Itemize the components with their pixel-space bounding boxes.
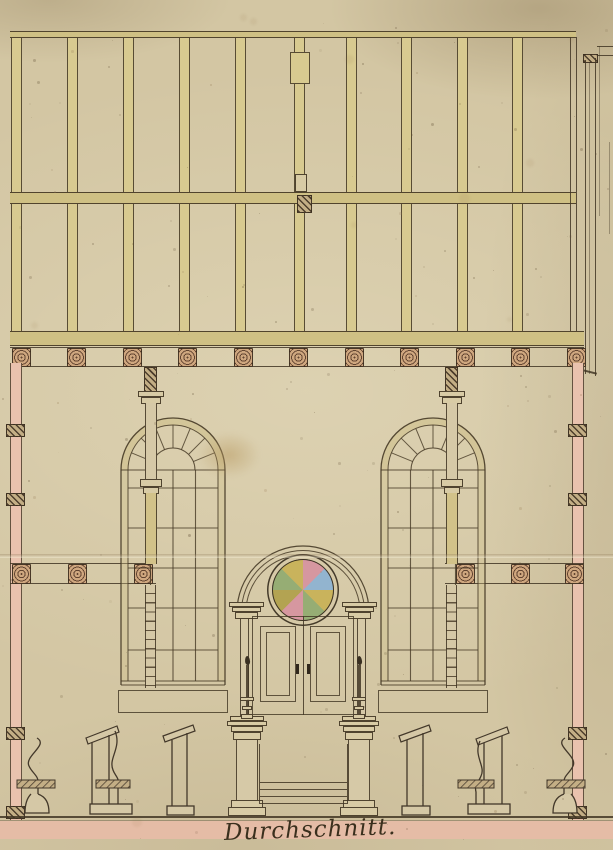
speck bbox=[527, 400, 529, 402]
speck bbox=[574, 116, 575, 117]
speck bbox=[525, 386, 527, 388]
roof-frame-right-line2 bbox=[576, 37, 577, 331]
wall-tie bbox=[6, 424, 25, 437]
gallery-joist-end bbox=[565, 564, 584, 584]
gallery-joist-end bbox=[511, 564, 530, 584]
pedestal-left-base2 bbox=[228, 807, 266, 816]
candle-knob bbox=[242, 706, 252, 710]
platform-step2 bbox=[260, 789, 347, 790]
roof-bottom-chord bbox=[10, 331, 584, 346]
gallery-joist-end bbox=[12, 564, 31, 584]
speck bbox=[540, 276, 542, 278]
roof-tie-beam bbox=[10, 192, 576, 204]
speck bbox=[59, 102, 61, 104]
blotch bbox=[526, 159, 534, 167]
candle-flame bbox=[244, 656, 250, 665]
joist-end bbox=[123, 348, 142, 367]
speck bbox=[323, 23, 324, 24]
arched-window bbox=[378, 413, 488, 689]
platform-side-left bbox=[259, 744, 260, 804]
platform-step4 bbox=[260, 803, 347, 804]
speck bbox=[314, 412, 315, 413]
speck bbox=[333, 533, 335, 535]
lectern-curved-left bbox=[84, 718, 140, 818]
speck bbox=[168, 285, 170, 287]
column-shaft bbox=[446, 403, 458, 480]
speck bbox=[478, 166, 480, 168]
joist-end bbox=[289, 348, 308, 367]
speck bbox=[92, 243, 94, 245]
speck bbox=[501, 102, 503, 104]
blotch bbox=[250, 18, 257, 25]
lectern-right bbox=[396, 718, 436, 818]
edge-line-c bbox=[595, 58, 596, 376]
speck bbox=[2, 585, 4, 587]
candle-flame bbox=[356, 656, 362, 665]
rose-window bbox=[272, 559, 334, 621]
roof-top-rail bbox=[10, 31, 576, 38]
speck bbox=[454, 42, 455, 43]
roof-post bbox=[179, 37, 190, 331]
roof-post bbox=[67, 37, 78, 331]
speck bbox=[524, 791, 527, 794]
candle-foot bbox=[353, 714, 365, 719]
column-corbel bbox=[140, 479, 162, 487]
speck bbox=[275, 321, 277, 323]
joist-end bbox=[234, 348, 253, 367]
pedestal-left-cap4 bbox=[233, 732, 261, 740]
paper-stain bbox=[198, 432, 260, 478]
speck bbox=[519, 507, 522, 510]
speck bbox=[60, 695, 63, 698]
speck bbox=[2, 398, 4, 400]
speck bbox=[300, 437, 303, 440]
blotch bbox=[31, 322, 38, 329]
candle-body bbox=[246, 665, 249, 698]
speck bbox=[304, 756, 306, 758]
speck bbox=[567, 236, 568, 237]
speck bbox=[207, 296, 208, 297]
speck bbox=[548, 558, 550, 560]
speck bbox=[395, 27, 397, 29]
speck bbox=[393, 737, 395, 739]
window-sill-panel-right bbox=[378, 690, 488, 713]
speck bbox=[520, 375, 522, 377]
speck bbox=[580, 148, 583, 151]
wall-tie bbox=[568, 493, 587, 506]
speck bbox=[605, 753, 607, 755]
corner-line-d bbox=[609, 142, 610, 234]
speck bbox=[526, 313, 529, 316]
joist-end bbox=[456, 348, 475, 367]
speck bbox=[31, 117, 32, 118]
column-corbel bbox=[441, 479, 463, 487]
speck bbox=[37, 81, 40, 84]
speck bbox=[173, 248, 176, 251]
speck bbox=[473, 277, 475, 279]
roof-post bbox=[401, 37, 412, 331]
joist-end bbox=[511, 348, 530, 367]
door-panel-left-inner bbox=[266, 632, 290, 696]
joist-end bbox=[67, 348, 86, 367]
speck bbox=[286, 388, 288, 390]
speck bbox=[362, 63, 364, 65]
speck bbox=[394, 370, 395, 371]
column-lower-post bbox=[145, 585, 156, 688]
speck bbox=[61, 589, 63, 591]
candle-knob bbox=[354, 706, 364, 710]
speck bbox=[192, 393, 194, 395]
platform-step3 bbox=[260, 796, 347, 797]
speck bbox=[319, 49, 322, 52]
wall-pew-right bbox=[542, 736, 586, 818]
speck bbox=[463, 839, 464, 840]
door-panel-right-inner bbox=[316, 632, 340, 696]
speck bbox=[375, 607, 377, 609]
speck bbox=[290, 381, 292, 383]
gallery-joist-end bbox=[68, 564, 87, 584]
wall-pew-left bbox=[16, 736, 60, 818]
window-sill-panel-left bbox=[118, 690, 228, 713]
roof-post bbox=[457, 37, 468, 331]
speck bbox=[360, 92, 362, 94]
kingpost-collar bbox=[295, 174, 307, 192]
speck bbox=[259, 213, 260, 214]
speck bbox=[293, 518, 294, 519]
lectern-left bbox=[160, 718, 200, 818]
corner-line-c bbox=[599, 46, 600, 216]
edge-line-a bbox=[585, 60, 586, 374]
wall-tie bbox=[568, 424, 587, 437]
speck bbox=[108, 66, 110, 68]
speck bbox=[507, 405, 509, 407]
speck bbox=[90, 427, 92, 429]
speck bbox=[57, 402, 59, 404]
speck bbox=[327, 373, 330, 376]
speck bbox=[367, 470, 368, 471]
ark-door-divider bbox=[303, 616, 304, 715]
speck bbox=[372, 462, 375, 465]
lectern-curved-right bbox=[454, 716, 512, 818]
speck bbox=[554, 430, 557, 433]
roof-post bbox=[11, 37, 22, 331]
roof-post bbox=[123, 37, 134, 331]
speck bbox=[548, 395, 551, 398]
roof-post bbox=[512, 37, 523, 331]
roof-post bbox=[235, 37, 246, 331]
speck bbox=[33, 496, 36, 499]
roof-frame-right-line bbox=[570, 37, 571, 331]
speck bbox=[605, 29, 608, 32]
fold-crease bbox=[0, 554, 613, 558]
door-handle-left bbox=[296, 664, 299, 674]
wall-tie bbox=[6, 493, 25, 506]
pedestal-right-shaft bbox=[348, 740, 370, 802]
speck bbox=[264, 489, 267, 492]
speck bbox=[493, 270, 494, 271]
speck bbox=[83, 599, 84, 600]
candle-body bbox=[358, 665, 361, 698]
speck bbox=[397, 42, 399, 44]
column-lower-post bbox=[446, 585, 457, 688]
speck bbox=[549, 485, 551, 487]
speck bbox=[415, 295, 417, 297]
column-hatched-top bbox=[144, 367, 157, 393]
platform-side-right bbox=[347, 744, 348, 804]
speck bbox=[432, 323, 434, 325]
blotch bbox=[240, 14, 247, 21]
kingpost-joint-hatch bbox=[297, 195, 312, 213]
speck bbox=[170, 220, 172, 222]
edge-line-b bbox=[589, 62, 590, 374]
speck bbox=[28, 480, 30, 482]
speck bbox=[210, 84, 212, 86]
speck bbox=[600, 416, 601, 417]
speck bbox=[423, 266, 425, 268]
column-shaft bbox=[145, 403, 157, 480]
speck bbox=[338, 462, 341, 465]
platform-step1 bbox=[260, 782, 347, 783]
column-hatched-top bbox=[445, 367, 458, 393]
speck bbox=[177, 373, 178, 374]
speck bbox=[533, 768, 534, 769]
joist-end bbox=[345, 348, 364, 367]
speck bbox=[516, 764, 518, 766]
speck bbox=[535, 268, 537, 270]
speck bbox=[311, 308, 314, 311]
joist-end bbox=[400, 348, 419, 367]
speck bbox=[556, 687, 558, 689]
speck bbox=[58, 452, 59, 453]
kingpost-block bbox=[290, 52, 310, 84]
candle-foot bbox=[241, 714, 253, 719]
speck bbox=[51, 169, 53, 171]
speck bbox=[109, 600, 112, 603]
drawing-sheet: Durchschnitt. bbox=[0, 0, 613, 850]
door-handle-right bbox=[307, 664, 310, 674]
speck bbox=[129, 399, 130, 400]
speck bbox=[574, 59, 575, 60]
speck bbox=[395, 238, 397, 240]
pedestal-right-cap4 bbox=[345, 732, 373, 740]
speck bbox=[33, 59, 36, 62]
speck bbox=[119, 114, 121, 116]
speck bbox=[416, 72, 418, 74]
speck bbox=[112, 40, 113, 41]
speck bbox=[29, 276, 32, 279]
speck bbox=[444, 250, 446, 252]
speck bbox=[339, 505, 341, 507]
speck bbox=[431, 123, 434, 126]
pedestal-left-shaft bbox=[236, 740, 258, 802]
joist-end bbox=[178, 348, 197, 367]
speck bbox=[29, 103, 31, 105]
caption-durchschnitt: Durchschnitt. bbox=[224, 814, 397, 846]
roof-post bbox=[346, 37, 357, 331]
